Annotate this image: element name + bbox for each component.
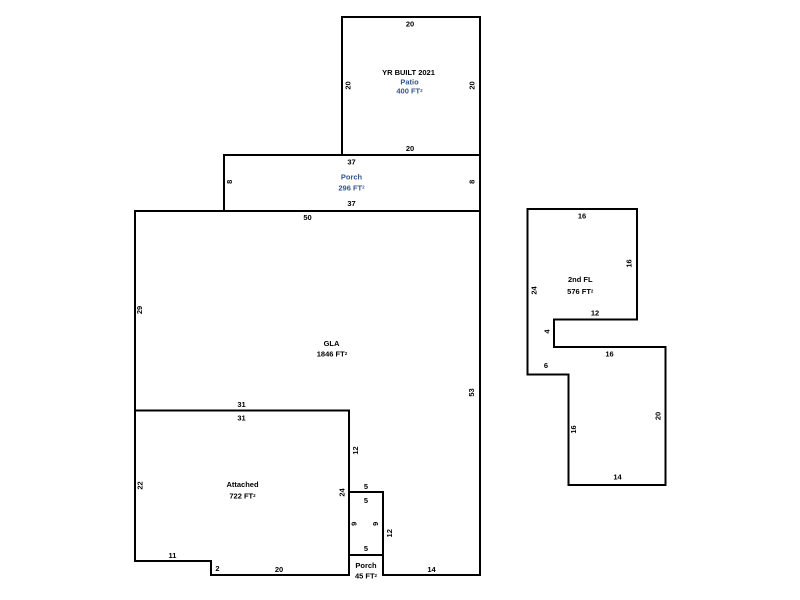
svg-text:20: 20 bbox=[344, 81, 353, 89]
svg-text:12: 12 bbox=[591, 308, 599, 317]
svg-text:24: 24 bbox=[529, 286, 538, 295]
svg-text:8: 8 bbox=[468, 180, 477, 184]
svg-text:12: 12 bbox=[385, 529, 394, 537]
svg-text:5: 5 bbox=[364, 544, 368, 553]
svg-text:37: 37 bbox=[347, 199, 355, 208]
svg-text:9: 9 bbox=[371, 522, 380, 526]
svg-text:GLA: GLA bbox=[324, 339, 340, 348]
svg-text:576 FT2: 576 FT2 bbox=[567, 287, 594, 296]
svg-text:20: 20 bbox=[406, 144, 414, 153]
svg-text:20: 20 bbox=[653, 412, 662, 420]
svg-text:Porch: Porch bbox=[341, 173, 363, 182]
svg-text:9: 9 bbox=[350, 522, 359, 526]
svg-text:2: 2 bbox=[215, 564, 219, 573]
svg-text:400 FT2: 400 FT2 bbox=[396, 87, 423, 96]
svg-text:16: 16 bbox=[578, 211, 586, 220]
svg-text:722 FT2: 722 FT2 bbox=[229, 492, 256, 501]
svg-text:29: 29 bbox=[135, 306, 144, 314]
svg-text:5: 5 bbox=[364, 482, 368, 491]
svg-text:1846 FT2: 1846 FT2 bbox=[317, 350, 348, 359]
svg-text:22: 22 bbox=[136, 481, 145, 489]
svg-text:24: 24 bbox=[338, 488, 347, 497]
svg-text:YR BUILT 2021: YR BUILT 2021 bbox=[382, 68, 435, 77]
svg-text:Attached: Attached bbox=[226, 480, 259, 489]
svg-text:8: 8 bbox=[225, 180, 234, 184]
svg-text:296 FT2: 296 FT2 bbox=[338, 183, 365, 192]
svg-text:53: 53 bbox=[467, 388, 476, 396]
svg-text:Porch: Porch bbox=[355, 561, 377, 570]
svg-text:50: 50 bbox=[303, 213, 311, 222]
svg-text:6: 6 bbox=[544, 361, 548, 370]
svg-text:12: 12 bbox=[351, 446, 360, 454]
svg-text:14: 14 bbox=[427, 565, 436, 574]
svg-text:16: 16 bbox=[605, 350, 613, 359]
svg-text:16: 16 bbox=[569, 425, 578, 433]
svg-text:2nd FL: 2nd FL bbox=[568, 275, 593, 284]
svg-text:11: 11 bbox=[169, 551, 177, 560]
svg-text:Patio: Patio bbox=[400, 77, 419, 86]
svg-text:20: 20 bbox=[275, 565, 283, 574]
svg-text:31: 31 bbox=[237, 400, 245, 409]
svg-text:31: 31 bbox=[237, 413, 245, 422]
svg-text:45 FT2: 45 FT2 bbox=[355, 572, 378, 581]
svg-text:20: 20 bbox=[468, 81, 477, 89]
svg-text:20: 20 bbox=[406, 20, 414, 29]
svg-text:37: 37 bbox=[347, 158, 355, 167]
svg-text:5: 5 bbox=[364, 496, 368, 505]
svg-text:14: 14 bbox=[613, 472, 622, 481]
svg-text:16: 16 bbox=[625, 259, 634, 267]
